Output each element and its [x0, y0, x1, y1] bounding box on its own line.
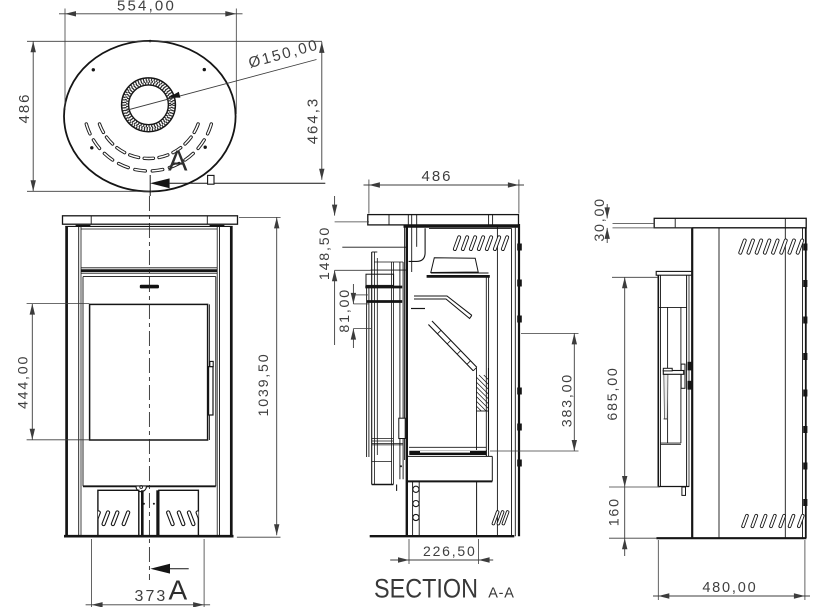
svg-text:A: A	[168, 146, 188, 178]
svg-text:1039,50: 1039,50	[256, 353, 272, 417]
svg-text:444,00: 444,00	[16, 355, 32, 409]
svg-text:373: 373	[135, 588, 168, 605]
svg-text:81,00: 81,00	[337, 288, 353, 333]
svg-text:A-A: A-A	[488, 586, 515, 602]
svg-text:554,00: 554,00	[117, 0, 176, 15]
svg-text:SECTION: SECTION	[374, 574, 478, 604]
svg-text:486: 486	[421, 168, 452, 185]
svg-text:160: 160	[607, 497, 623, 526]
svg-text:480,00: 480,00	[702, 580, 757, 596]
svg-text:383,00: 383,00	[560, 373, 576, 427]
svg-text:30,00: 30,00	[592, 197, 608, 242]
svg-text:148,50: 148,50	[317, 226, 333, 280]
svg-text:226,50: 226,50	[423, 543, 477, 559]
svg-text:A: A	[169, 575, 188, 606]
svg-text:464,3: 464,3	[305, 97, 322, 145]
svg-text:685,00: 685,00	[605, 366, 621, 420]
svg-text:486: 486	[16, 92, 33, 123]
svg-text:Ø150,00: Ø150,00	[247, 36, 321, 71]
